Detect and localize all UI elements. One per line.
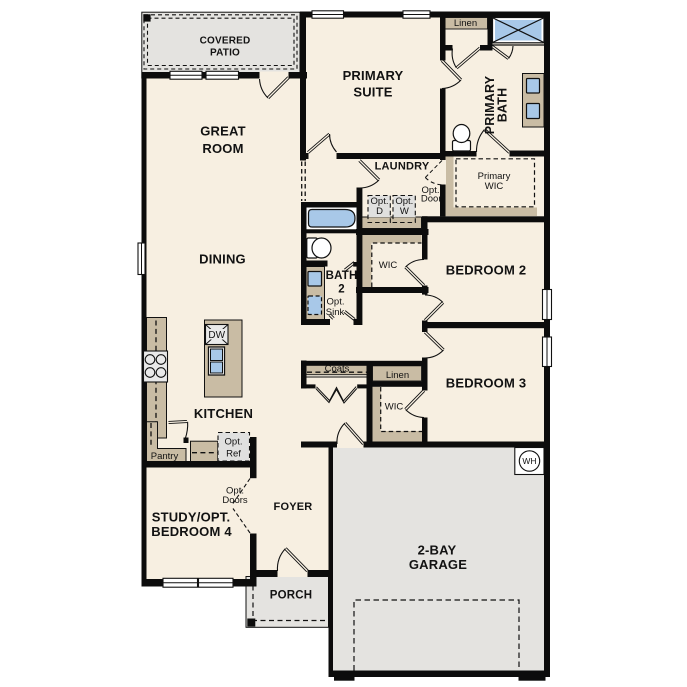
svg-text:Doors: Doors	[222, 495, 248, 506]
svg-text:WIC: WIC	[485, 181, 504, 192]
svg-text:GARAGE: GARAGE	[409, 557, 467, 572]
svg-text:DW: DW	[208, 330, 225, 341]
svg-text:GREAT: GREAT	[200, 124, 246, 139]
svg-text:SUITE: SUITE	[353, 84, 392, 99]
svg-text:Ref: Ref	[226, 449, 241, 460]
svg-text:Opt.: Opt.	[327, 297, 345, 308]
svg-text:FOYER: FOYER	[274, 501, 313, 513]
svg-text:2: 2	[338, 283, 345, 295]
svg-text:D: D	[376, 206, 383, 217]
svg-text:DINING: DINING	[199, 252, 246, 267]
svg-text:Opt.: Opt.	[225, 437, 243, 448]
svg-text:2-BAY: 2-BAY	[418, 543, 457, 558]
svg-text:Linen: Linen	[454, 18, 477, 29]
svg-text:Coats: Coats	[325, 363, 350, 374]
svg-text:ROOM: ROOM	[202, 141, 243, 156]
svg-text:COVERED: COVERED	[200, 36, 251, 47]
svg-text:STUDY/OPT.: STUDY/OPT.	[152, 510, 231, 525]
svg-text:Sink: Sink	[326, 307, 345, 318]
svg-text:PORCH: PORCH	[270, 590, 313, 602]
svg-text:Pantry: Pantry	[151, 451, 179, 462]
svg-text:WIC: WIC	[379, 260, 398, 271]
svg-text:Door: Door	[421, 193, 442, 204]
svg-text:WH: WH	[522, 456, 536, 466]
svg-text:BEDROOM 2: BEDROOM 2	[446, 263, 527, 278]
svg-text:LAUNDRY: LAUNDRY	[375, 160, 430, 172]
svg-text:PATIO: PATIO	[210, 48, 240, 59]
svg-text:BATH: BATH	[326, 270, 358, 282]
svg-text:W: W	[400, 206, 409, 217]
svg-text:KITCHEN: KITCHEN	[194, 406, 253, 421]
svg-text:Linen: Linen	[386, 370, 409, 381]
svg-text:PRIMARY: PRIMARY	[343, 68, 404, 83]
svg-text:WIC: WIC	[385, 402, 404, 413]
svg-text:BATH: BATH	[496, 88, 510, 123]
svg-text:BEDROOM 4: BEDROOM 4	[151, 524, 232, 539]
svg-text:BEDROOM 3: BEDROOM 3	[446, 376, 527, 391]
